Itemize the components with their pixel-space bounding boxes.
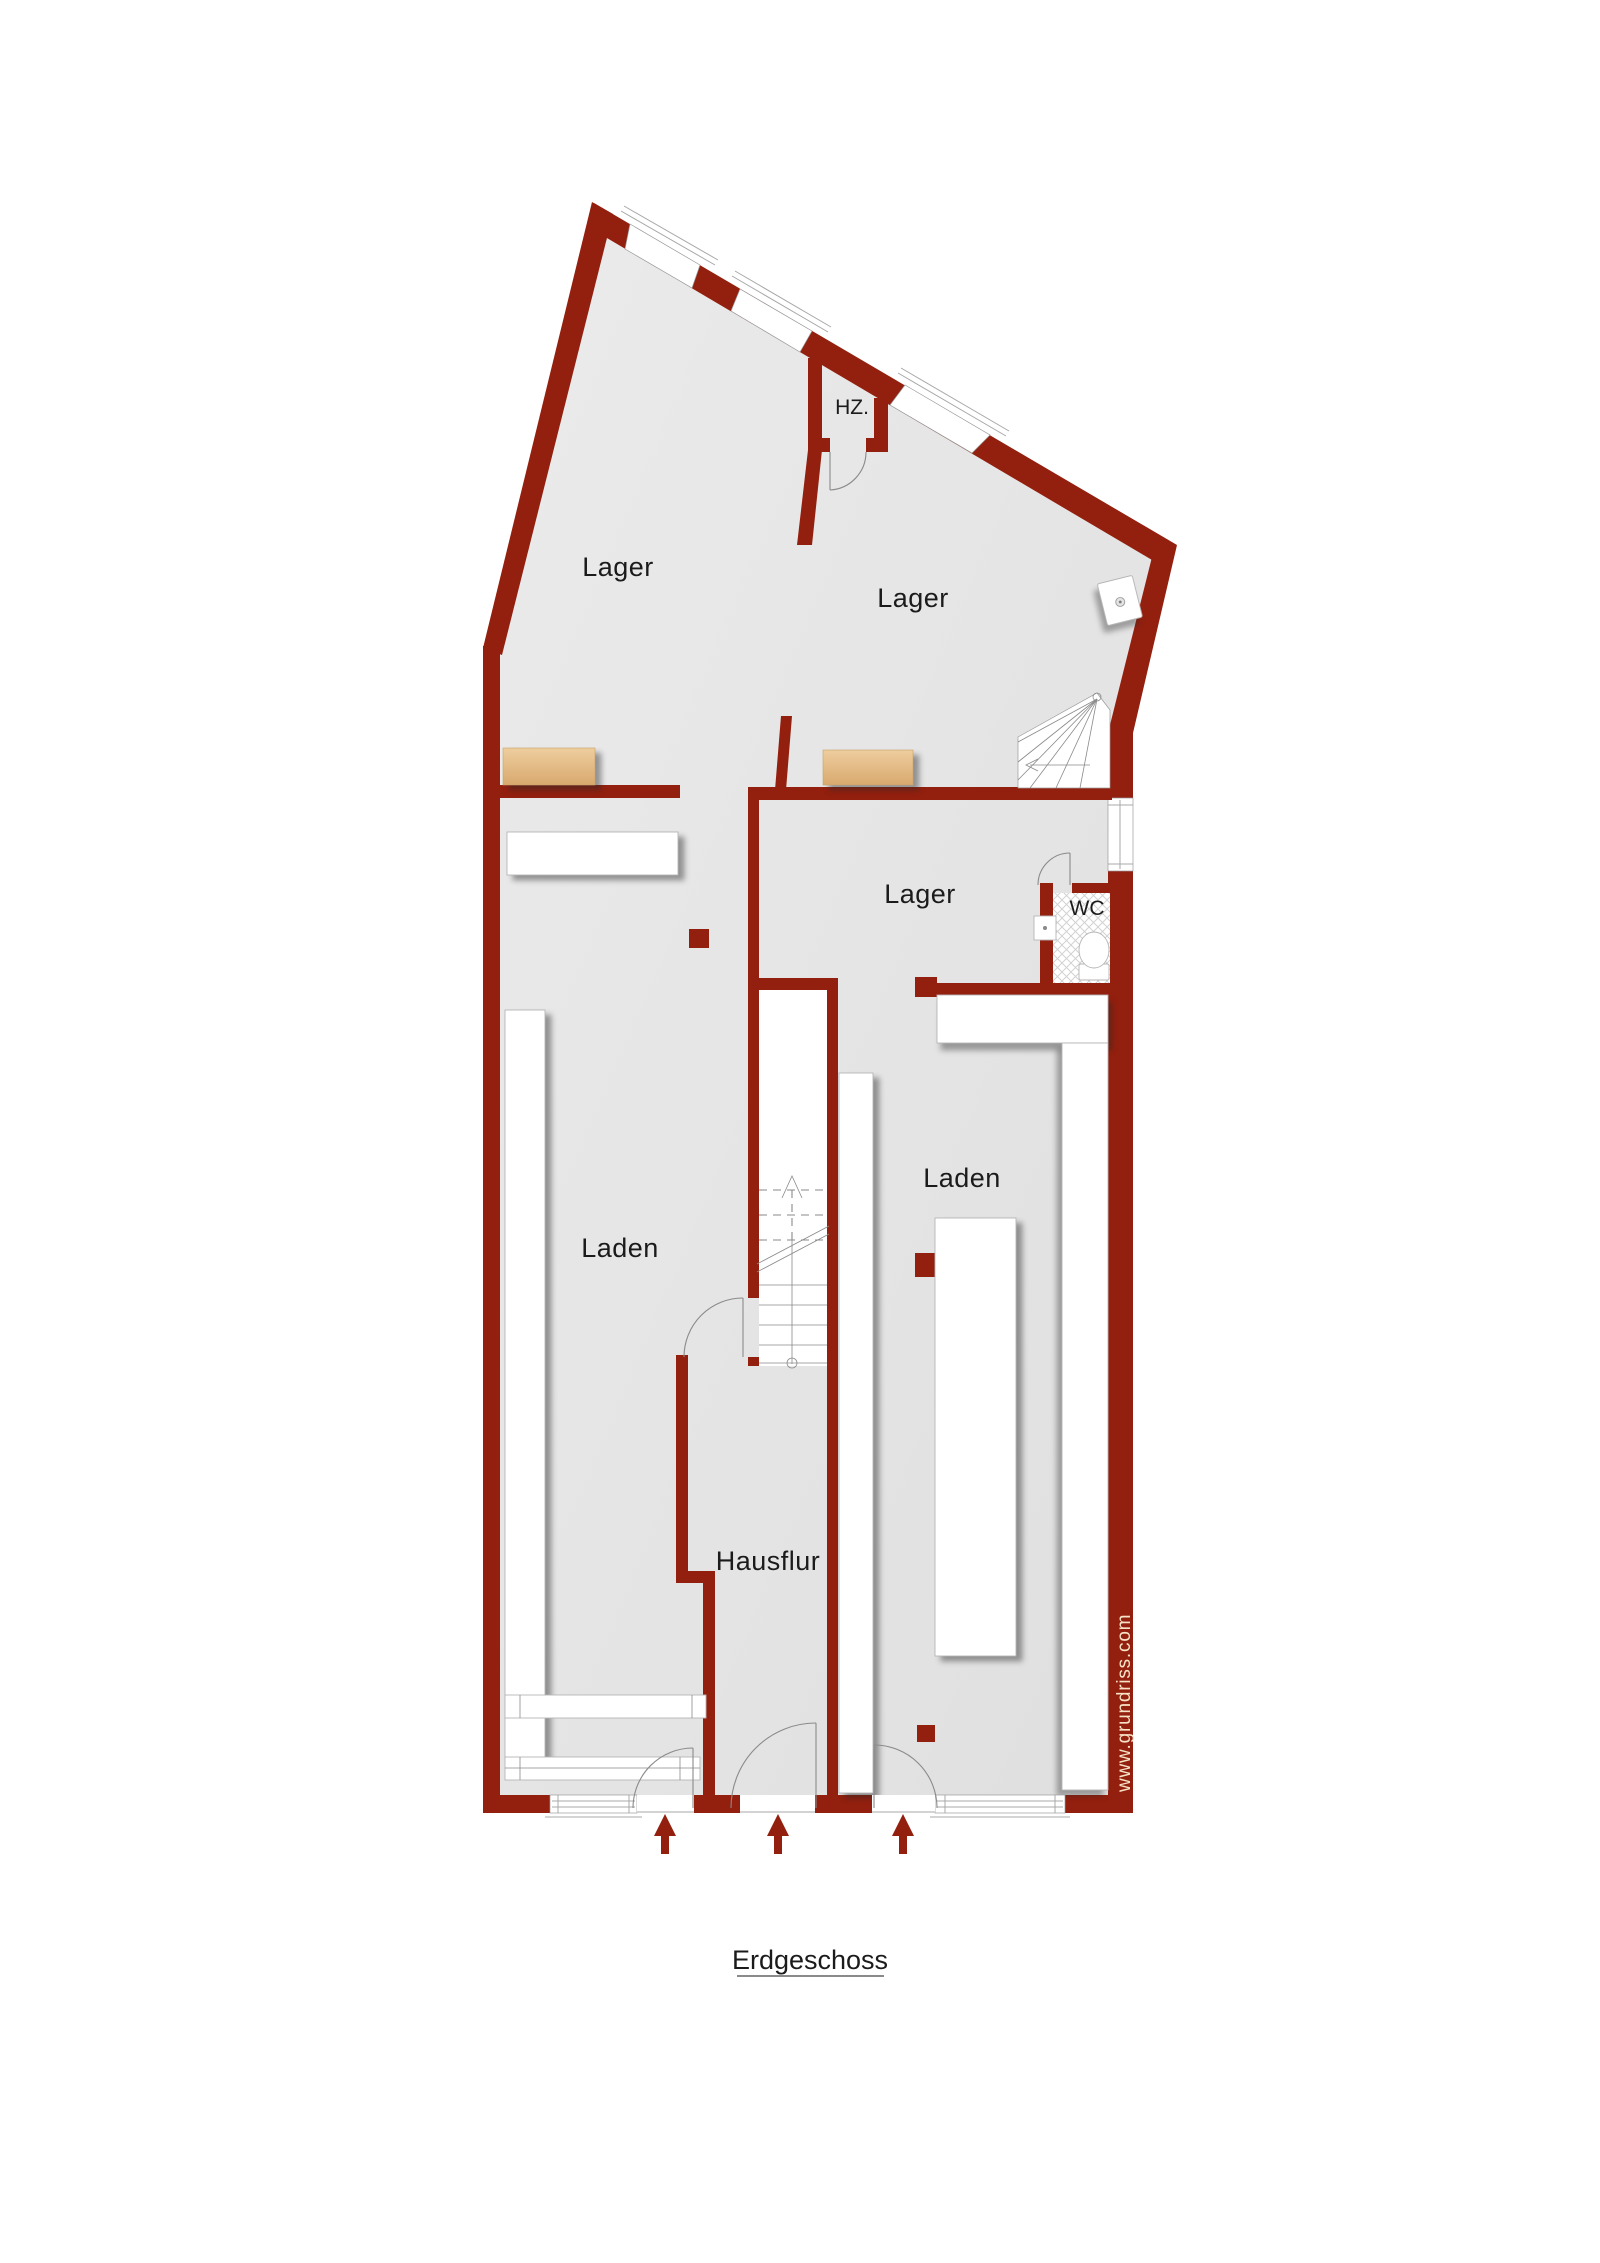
shelf-left-long: [505, 1010, 545, 1758]
pillar-1: [689, 929, 709, 948]
wc-wall-top-a: [1040, 883, 1048, 893]
watermark-text: www.grundriss.com: [1114, 1614, 1135, 1793]
entrance-arrows: [654, 1814, 914, 1854]
window-bottom-right: [930, 1795, 1070, 1817]
entrance-arrow-3: [892, 1814, 914, 1854]
wall-stair-right: [827, 990, 838, 1795]
floor-title: Erdgeschoss: [732, 1945, 888, 1976]
shelf-hausflur-right-long: [839, 1073, 873, 1793]
wall-hausflur-jog: [676, 1571, 715, 1583]
room-label-laden-right: Laden: [923, 1163, 1001, 1193]
main-staircase: [757, 990, 829, 1368]
bench-2: [823, 750, 913, 785]
left-wall: [483, 646, 500, 1813]
wall-stair-door-stub: [748, 1357, 759, 1366]
window-bottom-left: [545, 1795, 642, 1817]
room-label-hausflur: Hausflur: [716, 1546, 821, 1576]
room-label-hz: HZ.: [835, 396, 869, 419]
page-root: Lager Lager Lager HZ. WC Laden Laden Hau…: [0, 0, 1600, 2263]
wall-laden-left-top: [495, 785, 680, 798]
pillar-4: [917, 1725, 935, 1742]
wall-stair-cap: [748, 978, 838, 990]
pillar-2: [915, 977, 937, 997]
pillar-3: [915, 1253, 935, 1277]
entrance-arrow-1: [654, 1814, 676, 1854]
room-label-wc: WC: [1070, 897, 1105, 920]
shelf-left-top: [507, 832, 678, 875]
wall-lager-bottom: [937, 983, 1110, 996]
hz-stub-left: [808, 438, 830, 452]
wc-sink: [1034, 916, 1056, 940]
floor-title-text: Erdgeschoss: [732, 1945, 888, 1975]
wall-lager-top: [748, 787, 1112, 800]
counter-laden-right-top: [937, 995, 1108, 1043]
toilet: [1079, 932, 1109, 980]
window-right: [1108, 798, 1133, 871]
wc-wall-top-b: [1072, 883, 1110, 893]
hz-stub-right: [866, 438, 888, 452]
floorplan-svg: Lager Lager Lager HZ. WC Laden Laden Hau…: [0, 0, 1600, 2263]
wall-middle-vertical: [748, 787, 759, 1298]
room-label-lager-middle: Lager: [884, 879, 956, 909]
wall-hausflur-left-upper: [676, 1355, 688, 1578]
table-laden-right: [935, 1218, 1016, 1656]
room-label-lager-top-left: Lager: [582, 552, 654, 582]
room-label-laden-left: Laden: [581, 1233, 659, 1263]
room-label-lager-top-right: Lager: [877, 583, 949, 613]
wall-hausflur-left-lower: [703, 1583, 715, 1795]
hz-wall-left: [808, 358, 822, 452]
bench-1: [503, 748, 595, 785]
shelf-right-wall-long: [1062, 1043, 1108, 1790]
entrance-arrow-2: [767, 1814, 789, 1854]
